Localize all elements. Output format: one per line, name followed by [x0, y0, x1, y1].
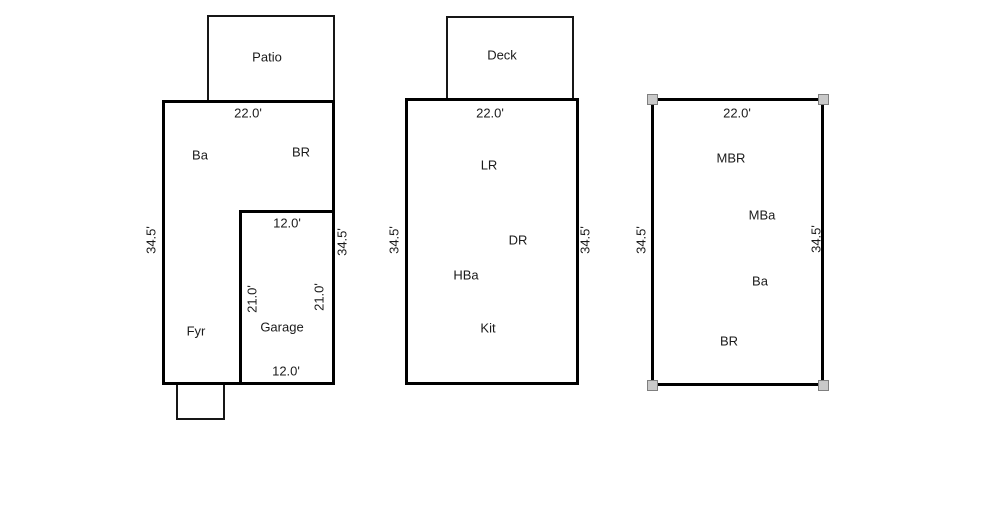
room-label-ba-upper: Ba: [752, 275, 768, 288]
selection-handle-bottom-left[interactable]: [647, 380, 658, 391]
room-label-lr: LR: [481, 159, 498, 172]
selection-handle-top-right[interactable]: [818, 94, 829, 105]
garage-height-dimension-right: 21.0': [313, 283, 326, 311]
room-label-kit: Kit: [480, 322, 495, 335]
middle-plan-height-dimension-left: 34.5': [388, 226, 401, 254]
room-label-mba: MBa: [749, 209, 776, 222]
room-label-br-upper: BR: [720, 335, 738, 348]
room-label-mbr: MBR: [717, 152, 746, 165]
right-plan-height-dimension-left: 34.5': [635, 226, 648, 254]
right-plan-height-dimension-right: 34.5': [810, 225, 823, 253]
room-label-br: BR: [292, 146, 310, 159]
floorplan-canvas: Patio 22.0' Ba BR 12.0' 34.5' 34.5' 21.0…: [0, 0, 1000, 529]
left-plan-height-dimension-left: 34.5': [145, 226, 158, 254]
room-label-hba: HBa: [453, 269, 478, 282]
selection-handle-bottom-right[interactable]: [818, 380, 829, 391]
room-label-fyr: Fyr: [187, 325, 206, 338]
garage-width-dimension-bottom: 12.0': [272, 365, 300, 378]
entry-step-outline[interactable]: [176, 381, 225, 420]
deck-label: Deck: [487, 49, 517, 62]
room-label-ba: Ba: [192, 149, 208, 162]
middle-plan-height-dimension-right: 34.5': [579, 226, 592, 254]
right-plan-width-dimension: 22.0': [723, 107, 751, 120]
left-plan-width-dimension: 22.0': [234, 107, 262, 120]
garage-label: Garage: [260, 321, 303, 334]
left-plan-height-dimension-right: 34.5': [336, 228, 349, 256]
patio-label: Patio: [252, 51, 282, 64]
garage-width-dimension-top: 12.0': [273, 217, 301, 230]
garage-height-dimension-left: 21.0': [246, 285, 259, 313]
room-label-dr: DR: [509, 234, 528, 247]
selection-handle-top-left[interactable]: [647, 94, 658, 105]
middle-plan-outline[interactable]: [405, 98, 579, 385]
middle-plan-width-dimension: 22.0': [476, 107, 504, 120]
